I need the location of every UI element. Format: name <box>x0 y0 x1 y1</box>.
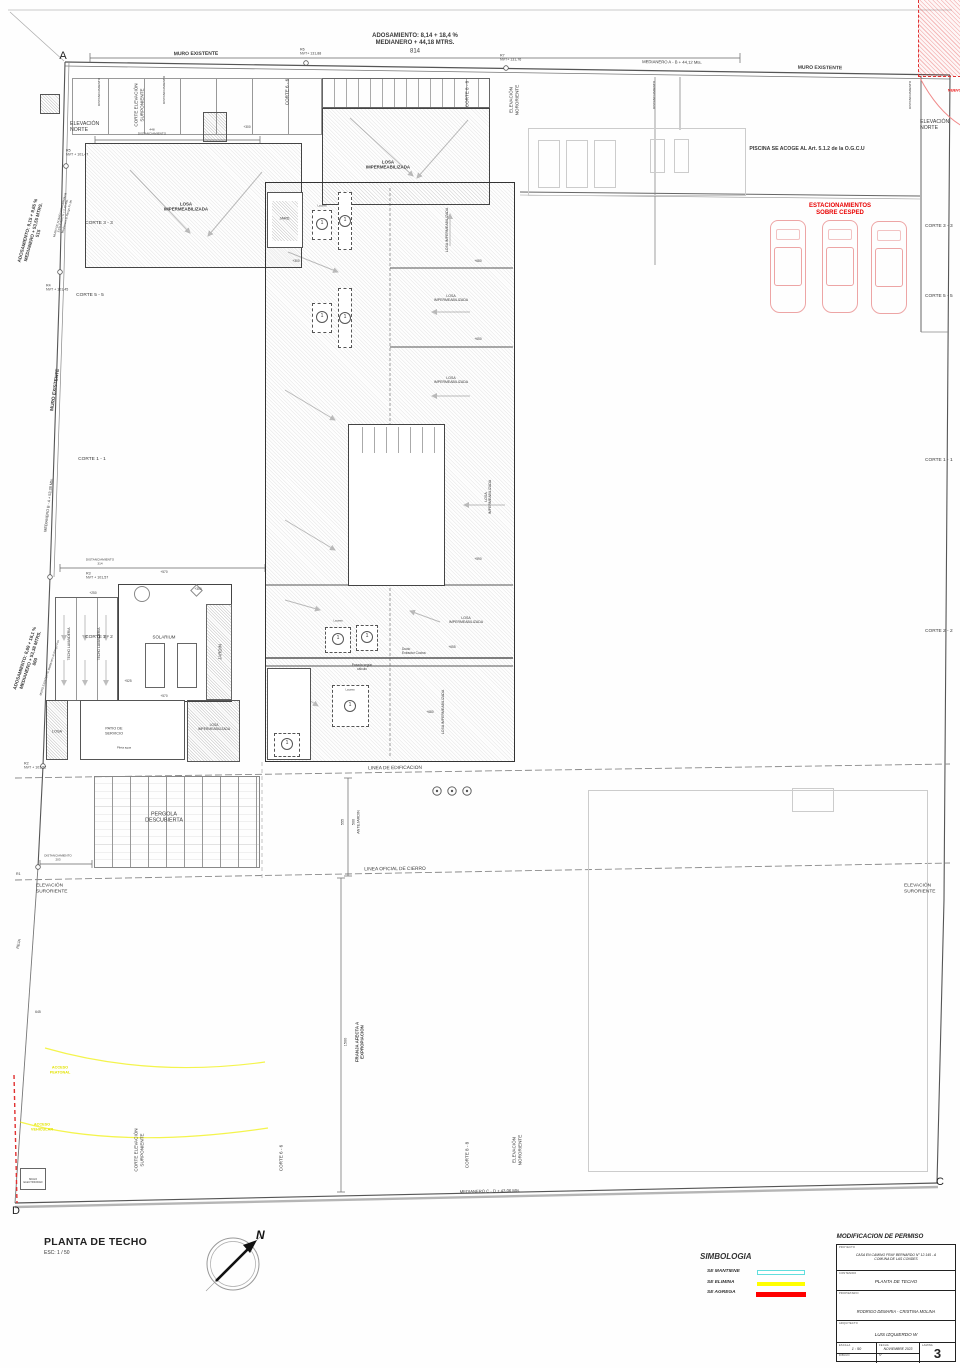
plan-label: +680 <box>474 260 481 264</box>
plan-label: LOSA IMPERMEABILIZADA <box>441 690 445 734</box>
plan-label: +650 <box>474 338 481 342</box>
plan-label: CORTE ELEVACIÓN SURPONIENTE <box>134 83 145 126</box>
plan-label: ACCESO PEATONAL <box>50 1065 71 1074</box>
plan-label: +570 <box>160 571 167 575</box>
corner-marker-d: D <box>12 1205 20 1217</box>
plan-label: DISTANCIAMIENTO <box>163 76 167 104</box>
roof-drain <box>134 586 150 602</box>
field-label-numero: N° <box>879 1354 882 1357</box>
plan-label: +525 <box>124 680 131 684</box>
parked-car <box>770 220 806 313</box>
skylight-number: 1 <box>344 700 356 712</box>
north-compass-icon <box>206 1237 260 1291</box>
plan-label: MEDIANERO A - B + 44,12 Mts. <box>642 59 702 65</box>
plan-label: R4 NVT + 101,45 <box>46 284 68 293</box>
skylight-number: 1 <box>281 738 293 750</box>
roof-plan-sheet: ADOSAMIENTO: 8,14 + 18,4 % MEDIANERO + 4… <box>0 0 960 1368</box>
field-label-proyecto: PROYECTO <box>839 1246 855 1249</box>
plan-label: NICHO ELECTRICIDAD <box>23 1178 42 1184</box>
plan-label: FRANJA AFECTA A EXPROPIACION <box>355 1022 366 1062</box>
plan-label: TECHO LAVANDERIA <box>98 628 102 661</box>
plan-label: Lucarna <box>333 620 342 623</box>
legend-swatch-elimina <box>757 1282 805 1286</box>
corner-marker-a: A <box>59 50 66 62</box>
plan-label: TECHO LAVANDERIA <box>68 628 72 661</box>
sheet-number: 3 <box>922 1346 953 1361</box>
plan-label: ELEVACIÓN NORORIENTE <box>509 85 520 116</box>
plan-label: LOSA IMPERMEABILIZADA <box>445 208 449 252</box>
plan-label: LOSA IMPERMEABILIZADA <box>434 376 468 384</box>
plan-label: DISTANCIAMIENTO 203 <box>44 854 71 861</box>
pool-lane <box>594 140 616 188</box>
plan-label: +250 <box>89 592 96 596</box>
plan-label: CORTE 2 - 2 <box>925 629 953 635</box>
plan-label: CORTE 5 - 5 <box>76 293 104 299</box>
plan-label: Lucarna <box>317 205 326 208</box>
parked-car <box>822 220 858 313</box>
plan-label: R6 NVT+ 131,88 <box>300 48 321 57</box>
plan-label: CORTE 3 - 3 <box>85 221 113 227</box>
plan-label: DISTANCIAMIENTO 314 <box>86 558 114 565</box>
legend-label-agrega: SE AGREGA <box>707 1290 736 1295</box>
plan-label: ACCESO VEHICULAR <box>31 1122 53 1131</box>
plan-label: DISTANCIAMIENTO <box>98 78 102 106</box>
solarium-bench <box>177 643 197 688</box>
plan-label: ADOSAMIENTO: 8,14 + 18,4 % MEDIANERO + 4… <box>372 33 458 47</box>
owner-name: RODRIGO DEMARIA - CRISTINA MOLINA <box>839 1309 953 1314</box>
laundry-roof-strips <box>55 597 118 701</box>
new-work-hatch <box>918 0 960 77</box>
plan-label: 814 <box>410 48 420 55</box>
plan-label: Pileta agua <box>117 746 131 749</box>
titleblock-header: MODIFICACION DE PERMISO <box>800 1233 960 1240</box>
plan-label: LINEA OFICIAL DE CIERRO <box>364 867 425 873</box>
legend-label-elimina: SE ELIMINA <box>707 1280 734 1285</box>
plan-label: CORTE 1 - 1 <box>78 457 106 463</box>
compass-north-label: N <box>256 1228 265 1242</box>
plan-label: +300 <box>194 588 201 592</box>
plan-label: PERGOLA DESCUBIERTA <box>145 812 183 825</box>
skylight-number: 1 <box>316 218 328 230</box>
skylight-number: 1 <box>339 312 351 324</box>
architect-name: LUIS IZQUIERDO W <box>839 1332 953 1337</box>
plan-label: ELEVACIÓN SURORIENTE <box>36 883 67 895</box>
titleblock: PROYECTO CASA EN CAMINO FRAY BERNARDO N°… <box>836 1244 956 1362</box>
plan-label: SOLARIUM <box>153 634 176 639</box>
plan-label: 448 DISTANCIAMIENTO <box>138 128 166 135</box>
plan-label: Lucarna <box>345 689 354 692</box>
project-name: CASA EN CAMINO FRAY BERNARDO N° 12.145 -… <box>839 1253 953 1261</box>
field-label-contenido: CONTENIDO <box>839 1272 856 1275</box>
plan-label: 500 ANTEJARDIN <box>351 810 360 834</box>
plan-label: LOSA IMPERMEABILIZADA <box>366 160 410 171</box>
plan-label: CORTE 3 - 3 <box>925 224 953 230</box>
solarium-bench <box>145 643 165 688</box>
plan-label: ELEVACIÓN NORTE <box>920 119 949 131</box>
rear-lot-outline <box>588 790 928 1172</box>
field-label-dibujo: DIBUJO <box>839 1354 850 1357</box>
plan-label: ESTACIONAMIENTOS SOBRE CESPED <box>809 203 871 217</box>
skylight-number: 1 <box>361 631 373 643</box>
plan-label: 645 <box>35 1010 41 1014</box>
plan-label: R2 NVT + 101,52 <box>24 762 46 771</box>
plan-label: R1 <box>16 872 21 876</box>
plan-label: +680 <box>426 711 433 715</box>
plan-title: PLANTA DE TECHO <box>44 1236 147 1248</box>
plan-label: R3 NVT + 101,57 <box>86 572 108 581</box>
plan-label: ELEVACIÓN NORTE <box>70 121 99 133</box>
plan-label: ELEVACIÓN NORORIENTE <box>512 1135 523 1166</box>
plan-label: LOSA IMPERMEABILIZADA <box>198 724 230 732</box>
corner-marker-c: C <box>936 1176 944 1188</box>
pool-step <box>674 139 689 173</box>
plan-label: CORTE 1 - 1 <box>925 458 953 464</box>
plan-label: +300 <box>292 260 299 264</box>
legend-swatch-mantiene <box>757 1270 805 1275</box>
plan-label: R5 NVT + 101,47 <box>66 149 88 158</box>
pool-lane <box>566 140 588 188</box>
plan-scale: ESC: 1 / 50 <box>44 1250 70 1256</box>
plan-label: MURO EXISTENTE <box>174 51 219 57</box>
rear-lot-structure <box>792 788 834 812</box>
service-patio <box>80 700 185 760</box>
plan-label: DISTANCIAMIENTO <box>909 81 913 109</box>
plan-label: +655 <box>448 646 455 650</box>
plan-label: LOSA IMPERMEABILIZADA <box>484 480 492 514</box>
field-label-arquitecto: ARQUITECTO <box>839 1322 858 1325</box>
legend-swatch-agrega <box>756 1292 806 1297</box>
plan-label: LOSA IMPERMEABILIZADA <box>449 616 483 624</box>
plan-label: PATIO DE SERVICIO <box>105 726 123 735</box>
pool-outline <box>528 128 746 196</box>
plan-label: JARD. <box>280 217 291 222</box>
plan-label: CORTE 5 - 5 <box>925 294 953 300</box>
plan-label: CORTE 8 - 8 <box>464 81 470 107</box>
legend-title: SIMBOLOGIA <box>700 1252 752 1261</box>
plan-label: LINEA DE EDIFICACION <box>368 766 422 772</box>
plan-label: MURO EXISTENTE <box>798 65 843 72</box>
legend-label-mantiene: SE MANTIENE <box>707 1269 740 1274</box>
plan-label: PISCINA SE ACOGE AL Art. 5.1.2 de la O.G… <box>749 146 864 152</box>
skylight-number: 1 <box>332 633 344 645</box>
date-value: NOVIEMBRE 2023 <box>879 1347 917 1351</box>
plan-label: +590 <box>474 558 481 562</box>
pool-lane <box>538 140 560 188</box>
plan-label: CORTE 6 - 6 <box>278 1145 284 1171</box>
plan-label: R7 NVT+ 131,76 <box>500 54 521 63</box>
skylight-number: 1 <box>339 215 351 227</box>
plan-label: JARDIN <box>217 644 222 660</box>
plan-label: Pasada según cálculo <box>352 664 372 672</box>
sheet-content: PLANTA DE TECHO <box>839 1279 953 1284</box>
pool-step <box>650 139 665 173</box>
chimney <box>203 112 227 142</box>
skylight-number: 1 <box>316 311 328 323</box>
plan-label: DISTANCIAMIENTO <box>653 81 657 109</box>
wall-pilaster <box>40 94 60 114</box>
plan-label: 1500 <box>344 1038 349 1046</box>
plan-label: ELEVACIÓN SURORIENTE <box>904 883 935 895</box>
scale-value: 1 : 50 <box>839 1347 874 1351</box>
plan-label: Ducto Extractor Cocina <box>402 648 426 656</box>
plan-label: LOSA IMPERMEABILIZADA <box>164 202 208 213</box>
plan-label: +570 <box>160 695 167 699</box>
field-label-propietario: PROPIETARIO <box>839 1292 859 1295</box>
plan-label: CORTE ELEVACIÓN SURPONIENTE <box>134 1128 145 1171</box>
courtyard-opening <box>348 424 445 586</box>
plan-label: LOSA IMPERMEABILIZADA <box>434 294 468 302</box>
plan-label: CORTE 6 - 6 <box>284 79 290 105</box>
plan-label: NUEVO <box>948 89 960 94</box>
plan-label: +300 <box>243 126 250 130</box>
plan-label: LOSA <box>52 730 62 735</box>
parked-car <box>871 221 907 314</box>
plan-label: CORTE 8 - 8 <box>464 1142 470 1168</box>
plan-label: 555 <box>341 819 346 825</box>
